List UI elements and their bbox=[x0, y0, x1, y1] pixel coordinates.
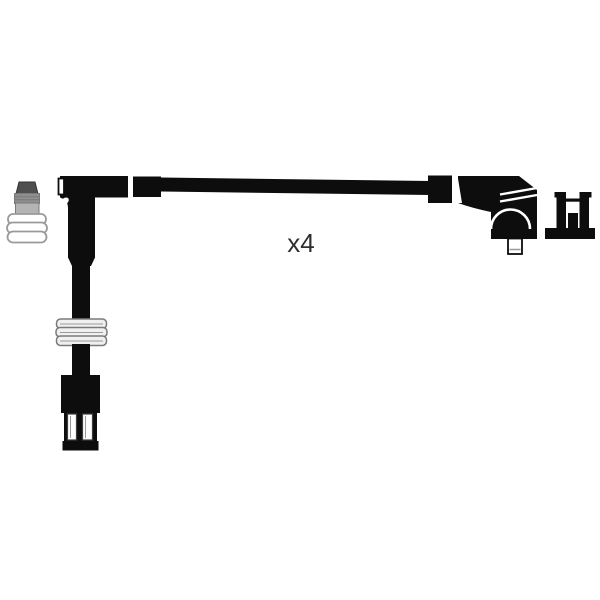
right-cable-collar bbox=[428, 176, 452, 204]
connector-slot-right bbox=[83, 414, 93, 440]
connector-foot-bar bbox=[63, 441, 99, 451]
product-illustration-ignition-cable-kit: x4 bbox=[0, 0, 600, 600]
left-cable-collar bbox=[133, 177, 161, 198]
bracket-left-pillar-cap bbox=[555, 192, 558, 198]
bracket-left-pillar bbox=[557, 192, 567, 230]
terminal-cap bbox=[16, 182, 38, 194]
left-boot-separator-band bbox=[128, 177, 133, 198]
bracket-center-stub bbox=[568, 213, 578, 229]
cable-grommet-ribs bbox=[56, 319, 107, 346]
left-boot-open-end bbox=[59, 179, 65, 195]
vertical-cable-lower bbox=[72, 344, 90, 376]
terminal-ring-3 bbox=[8, 232, 47, 243]
terminal-ridges bbox=[15, 194, 40, 204]
bracket-right-pillar-cap bbox=[589, 192, 592, 198]
bracket-right-pillar bbox=[580, 192, 590, 230]
connector-slot-left bbox=[68, 414, 77, 440]
cable-end-connector bbox=[61, 375, 100, 451]
vertical-cable-upper bbox=[72, 264, 90, 323]
bracket-contact-bar bbox=[566, 199, 580, 202]
connector-upper-block bbox=[61, 375, 100, 413]
right-boot-terminal-pin bbox=[508, 239, 522, 255]
quantity-label: x4 bbox=[287, 228, 314, 258]
